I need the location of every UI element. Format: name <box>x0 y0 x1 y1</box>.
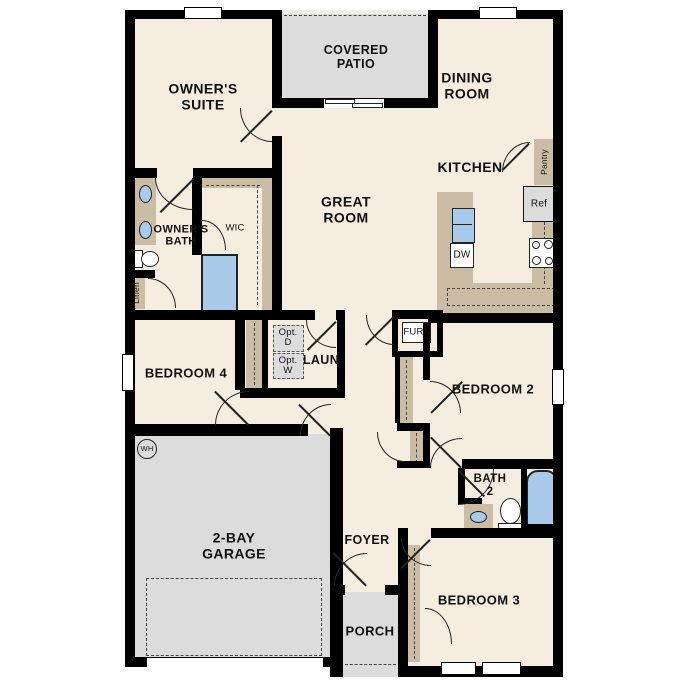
opt-dryer-label: Opt. D <box>279 328 298 348</box>
owners-bath-label: OWNER'S BATH <box>154 224 209 249</box>
furnace-label: FURN <box>403 328 430 339</box>
wall <box>125 10 135 667</box>
wall <box>462 459 563 469</box>
bedroom2-label: BEDROOM 2 <box>452 383 534 398</box>
wall <box>125 168 157 178</box>
wall <box>428 10 438 108</box>
garage-label: 2-BAY GARAGE <box>202 530 266 561</box>
wall <box>127 270 155 278</box>
wall <box>235 320 245 390</box>
wall <box>553 10 563 677</box>
water-heater-label: WH <box>141 445 154 453</box>
porch-edge-dash <box>345 664 396 665</box>
patio-edge-dash <box>284 15 426 16</box>
wall <box>397 461 430 468</box>
window <box>552 369 564 405</box>
floor-plan: COVERED PATIO OWNER'S SUITE DINING ROOM … <box>0 0 687 687</box>
covered-patio-label: COVERED PATIO <box>324 43 389 71</box>
refrigerator-label: Ref <box>531 198 547 209</box>
window <box>122 354 134 391</box>
linen-label: Linen <box>132 282 142 304</box>
wall <box>521 468 527 528</box>
burner-icon <box>532 241 540 249</box>
wall <box>272 178 282 320</box>
great-room-label: GREAT ROOM <box>321 194 371 225</box>
wic-shelf-side <box>262 188 272 310</box>
hall-closet-rod <box>254 323 255 385</box>
dining-room-label: DINING ROOM <box>441 70 492 101</box>
kitchen-label: KITCHEN <box>437 160 502 176</box>
porch-label: PORCH <box>346 625 395 640</box>
bath2-sink-icon <box>470 511 487 523</box>
owners-suite-label: OWNER'S SUITE <box>168 81 237 112</box>
closet-b-rod <box>416 433 417 463</box>
bath2-label: BATH 2 <box>474 473 507 499</box>
pantry-label: Pantry <box>540 149 550 175</box>
wall <box>385 585 398 595</box>
sink-divider <box>453 224 472 225</box>
burner-icon <box>532 256 541 265</box>
bedroom4-label: BEDROOM 4 <box>145 367 227 382</box>
garage-door-dash <box>146 578 322 656</box>
bath-sink-icon <box>139 221 152 239</box>
kitchen-sink-icon <box>452 208 475 243</box>
wall <box>431 528 563 538</box>
wall <box>272 10 282 108</box>
wall <box>125 424 308 436</box>
toilet-bowl-icon <box>141 251 159 267</box>
window <box>441 662 476 675</box>
window <box>184 7 222 19</box>
sliding-door-panel <box>325 99 355 104</box>
wall <box>398 666 563 677</box>
opt-washer-label: Opt. W <box>279 356 298 376</box>
wall <box>193 168 282 178</box>
wall <box>125 310 315 320</box>
wall <box>240 388 345 398</box>
wic-label: WIC <box>225 224 244 235</box>
bedroom3-closet-rod <box>414 548 415 659</box>
shower-icon <box>201 254 238 314</box>
wic-rod-dash-h <box>206 185 260 186</box>
burner-icon <box>545 257 553 265</box>
wall <box>330 585 345 595</box>
garage-door-opening <box>147 658 323 667</box>
burner-icon <box>544 240 553 249</box>
wall <box>330 428 343 677</box>
toilet2-bowl-icon <box>500 498 521 524</box>
wall <box>397 423 430 431</box>
closet-a-rod <box>406 360 407 420</box>
bedroom3-label: BEDROOM 3 <box>438 594 520 609</box>
wic-shelf-top <box>202 178 272 188</box>
counter-edge-dash <box>447 288 555 306</box>
dishwasher-label: DW <box>453 249 470 260</box>
wall <box>262 320 268 388</box>
window <box>479 7 517 19</box>
wall <box>428 313 563 323</box>
laundry-label: LAUN <box>303 353 339 367</box>
foyer-label: FOYER <box>344 533 389 547</box>
wall <box>395 357 400 423</box>
window <box>482 662 521 675</box>
bath-sink-icon <box>139 185 152 203</box>
sliding-door-panel <box>352 103 383 108</box>
wic-rod-dash-v <box>257 185 258 305</box>
